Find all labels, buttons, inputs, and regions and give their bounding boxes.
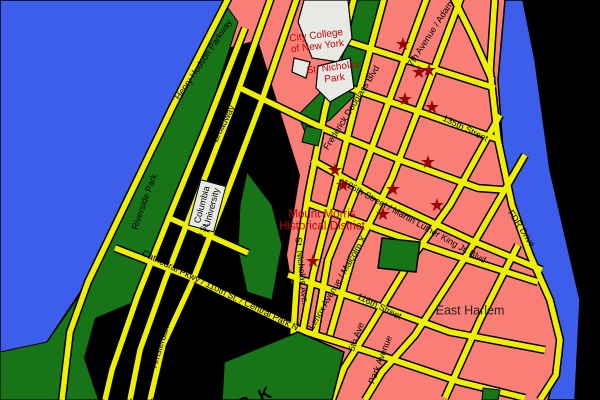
- east-harlem-park-patch: [482, 388, 500, 400]
- map-canvas: [0, 0, 600, 400]
- small-park-square: [302, 126, 322, 146]
- marcus-garvey-park-area: [378, 238, 420, 272]
- harlem-tour-map: Henry Hudson ParkwayBroadwayRiverside Pa…: [0, 0, 600, 400]
